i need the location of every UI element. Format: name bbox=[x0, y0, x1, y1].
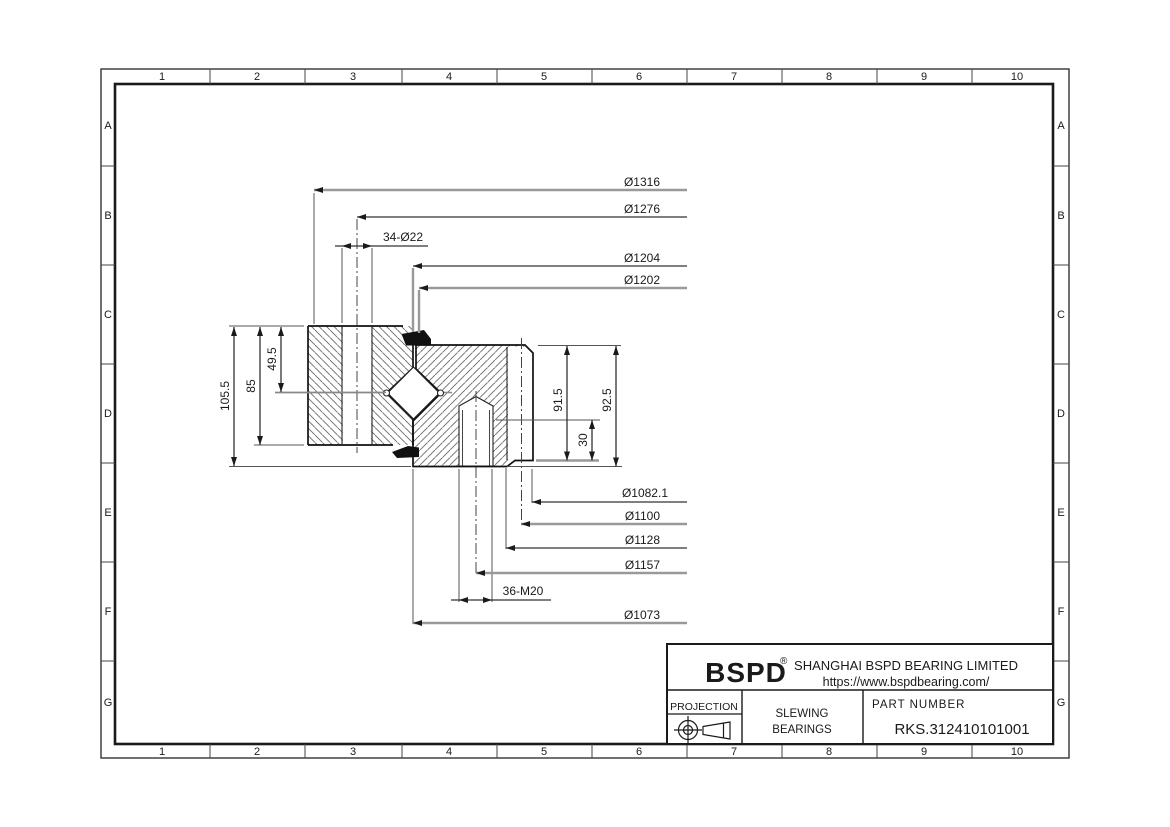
grid-col-label: 5 bbox=[541, 746, 547, 758]
dim-thread-depth: 30 bbox=[576, 433, 590, 447]
seal-bottom bbox=[392, 446, 419, 458]
grid-row-label: A bbox=[104, 120, 112, 132]
company-name: SHANGHAI BSPD BEARING LIMITED bbox=[794, 658, 1018, 673]
product-type-line2: BEARINGS bbox=[772, 724, 832, 736]
grid-row-label: C bbox=[1057, 309, 1065, 321]
dim-outer-ring-height-2: 92.5 bbox=[600, 388, 614, 412]
grid-row-label: F bbox=[1058, 606, 1065, 618]
dim-bore: Ø1073 bbox=[624, 608, 660, 622]
dim-tapped-holes: 36-M20 bbox=[503, 584, 544, 598]
company-website: https://www.bspdbearing.com/ bbox=[823, 675, 990, 689]
grid-col-label: 7 bbox=[731, 71, 737, 83]
product-type-line1: SLEWING bbox=[775, 708, 828, 720]
dim-total-height: 105.5 bbox=[218, 381, 232, 411]
grid-row-label: B bbox=[104, 210, 111, 222]
title-block: BSPD ® SHANGHAI BSPD BEARING LIMITED htt… bbox=[667, 644, 1053, 744]
dim-bolt-holes-outer: 34-Ø22 bbox=[383, 230, 423, 244]
grid-row-label: D bbox=[1057, 408, 1065, 420]
company-logo: BSPD bbox=[705, 657, 787, 688]
roller-contact-right bbox=[438, 390, 444, 396]
outer-ring-hole-band bbox=[508, 347, 532, 460]
grid-col-label: 5 bbox=[541, 71, 547, 83]
grid-col-label: 8 bbox=[826, 71, 832, 83]
grid-row-label: G bbox=[1057, 697, 1066, 709]
grid-col-label: 6 bbox=[636, 746, 642, 758]
dim-1128: Ø1128 bbox=[625, 533, 660, 547]
dim-raceway-height: 49.5 bbox=[265, 347, 279, 371]
grid-col-label: 1 bbox=[159, 746, 165, 758]
grid-row-label: F bbox=[105, 606, 112, 618]
grid-col-label: 10 bbox=[1011, 71, 1023, 83]
projection-label: PROJECTION bbox=[670, 701, 738, 713]
grid-col-label: 4 bbox=[446, 746, 452, 758]
registered-mark-icon: ® bbox=[780, 656, 788, 667]
grid-col-label: 9 bbox=[921, 746, 927, 758]
dim-1100: Ø1100 bbox=[625, 509, 660, 523]
grid-col-label: 6 bbox=[636, 71, 642, 83]
part-number-label: PART NUMBER bbox=[872, 699, 965, 711]
dim-seal-1202: Ø1202 bbox=[624, 273, 660, 287]
part-number-value: RKS.312410101001 bbox=[894, 721, 1029, 738]
grid-col-label: 1 bbox=[159, 71, 165, 83]
grid-col-label: 9 bbox=[921, 71, 927, 83]
grid-col-label: 2 bbox=[254, 746, 260, 758]
dim-od: Ø1316 bbox=[624, 175, 660, 189]
grid-col-label: 3 bbox=[350, 746, 356, 758]
grid-col-label: 7 bbox=[731, 746, 737, 758]
grid-col-label: 8 bbox=[826, 746, 832, 758]
grid-row-label: G bbox=[104, 697, 113, 709]
grid-row-label: E bbox=[1057, 507, 1064, 519]
dim-inner-ring-height: 85 bbox=[244, 379, 258, 393]
drawing-sheet: 1 2 3 4 5 6 7 8 9 10 1 2 3 4 5 6 7 8 9 1… bbox=[0, 0, 1170, 827]
grid-row-label: C bbox=[104, 309, 112, 321]
grid-col-label: 10 bbox=[1011, 746, 1023, 758]
dim-outer-ring-height-1: 91.5 bbox=[551, 388, 565, 412]
dim-1157: Ø1157 bbox=[625, 558, 660, 572]
grid-row-label: D bbox=[104, 408, 112, 420]
grid-col-label: 2 bbox=[254, 71, 260, 83]
grid-col-label: 3 bbox=[350, 71, 356, 83]
grid-row-label: B bbox=[1057, 210, 1064, 222]
dim-seal-1204: Ø1204 bbox=[624, 251, 660, 265]
grid-row-label: A bbox=[1057, 120, 1065, 132]
engineering-drawing: 1 2 3 4 5 6 7 8 9 10 1 2 3 4 5 6 7 8 9 1… bbox=[0, 0, 1170, 827]
dim-1082: Ø1082.1 bbox=[622, 486, 668, 500]
grid-col-label: 4 bbox=[446, 71, 452, 83]
grid-row-label: E bbox=[104, 507, 111, 519]
dim-bolt-circle-outer: Ø1276 bbox=[624, 202, 660, 216]
